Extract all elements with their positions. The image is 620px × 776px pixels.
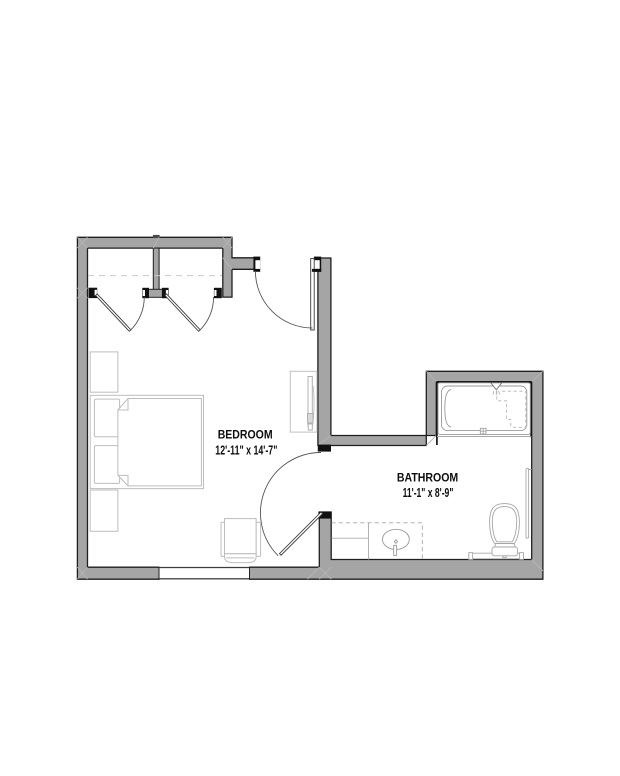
svg-text:12'-11" x 14'-7": 12'-11" x 14'-7" <box>215 444 277 458</box>
svg-text:BEDROOM: BEDROOM <box>218 427 273 441</box>
svg-text:BATHROOM: BATHROOM <box>397 471 458 485</box>
svg-text:11'-1" x 8'-9": 11'-1" x 8'-9" <box>403 486 454 500</box>
